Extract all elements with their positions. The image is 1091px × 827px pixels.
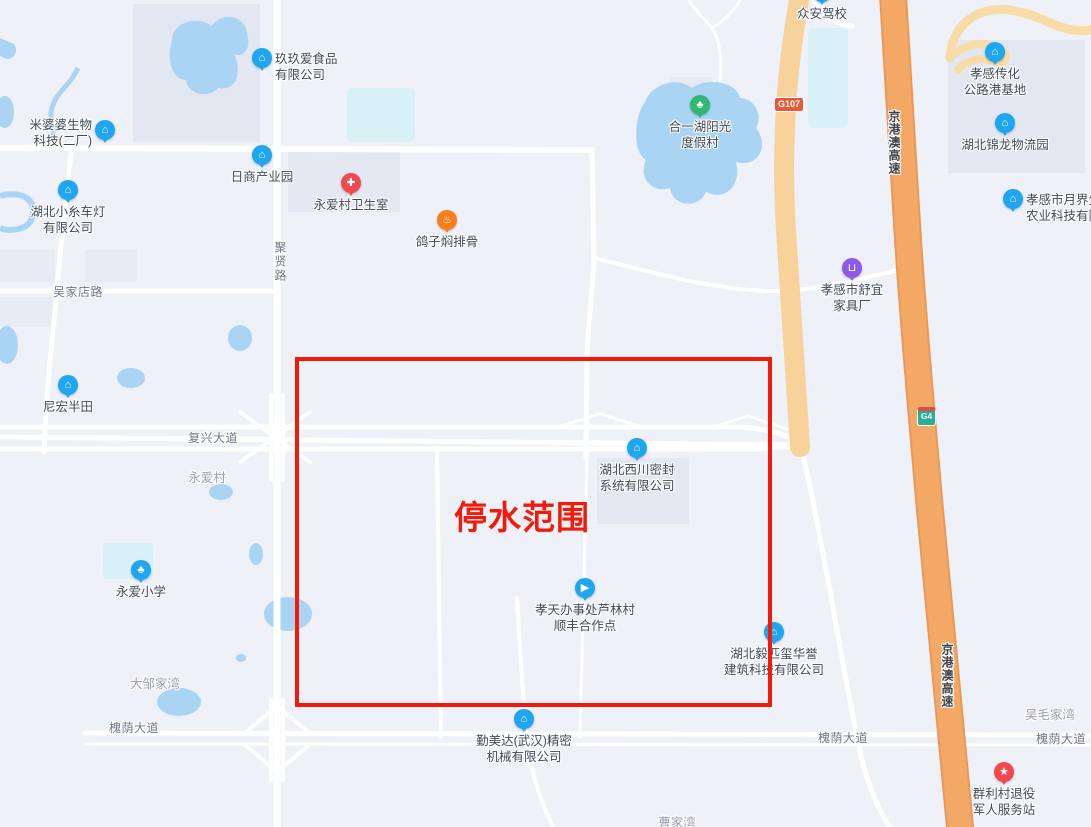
- poi-label: 群利村退役军人服务站: [973, 787, 1036, 818]
- poi-label: 日商产业园: [231, 170, 294, 186]
- expressway-label: 京港澳高速: [939, 643, 954, 708]
- building-block: [85, 250, 137, 282]
- poi-label: 湖北小糸车灯有限公司: [30, 205, 105, 236]
- poi-label: 玖玖爱食品有限公司: [275, 52, 338, 83]
- poi-label: 湖北锦龙物流园: [961, 138, 1049, 154]
- poi-label: 合一湖阳光度假村: [669, 120, 732, 151]
- area-label: 曹家湾: [658, 812, 696, 827]
- water-outage-label: 停水范围: [454, 491, 590, 539]
- g4-expressway-badge: G4: [917, 407, 936, 426]
- poi-label: 永爱小学: [116, 585, 166, 601]
- building-block: [0, 297, 55, 327]
- map-canvas[interactable]: 吴家店路 复兴大道 槐荫大道 槐荫大道 槐荫大道 聚贤路 京港澳高速 京港澳高速…: [0, 0, 1091, 827]
- road-label: 槐荫大道: [818, 729, 868, 746]
- poi-label: 尼宏半田: [43, 400, 93, 416]
- poi-label: 米婆婆生物科技(二厂): [29, 118, 92, 149]
- poi-label: 众安驾校: [797, 7, 847, 23]
- road-label: 槐荫大道: [109, 719, 159, 736]
- road-label-vertical: 聚贤路: [272, 241, 287, 283]
- road-label: 槐荫大道: [1036, 730, 1086, 747]
- building-block: [0, 250, 55, 282]
- g107-road-badge: G107: [774, 97, 804, 112]
- road-label: 吴家店路: [53, 283, 103, 300]
- area-label: 永爱村: [188, 467, 226, 486]
- road-label: 复兴大道: [188, 429, 238, 446]
- expressway-label: 京港澳高速: [886, 110, 901, 175]
- area-label: 大邹家湾: [130, 673, 180, 692]
- poi-label: 勤美达(武汉)精密机械有限公司: [476, 734, 572, 765]
- poi-label: 孝感市月界生农业科技有限: [1026, 193, 1091, 224]
- poi-label: 孝感传化公路港基地: [964, 67, 1027, 98]
- poi-label: 孝感市舒宜家具厂: [821, 283, 884, 314]
- poi-label: 鸽子焖排骨: [416, 235, 479, 251]
- poi-label: 永爱村卫生室: [313, 198, 388, 214]
- area-label: 吴毛家湾: [1025, 704, 1075, 723]
